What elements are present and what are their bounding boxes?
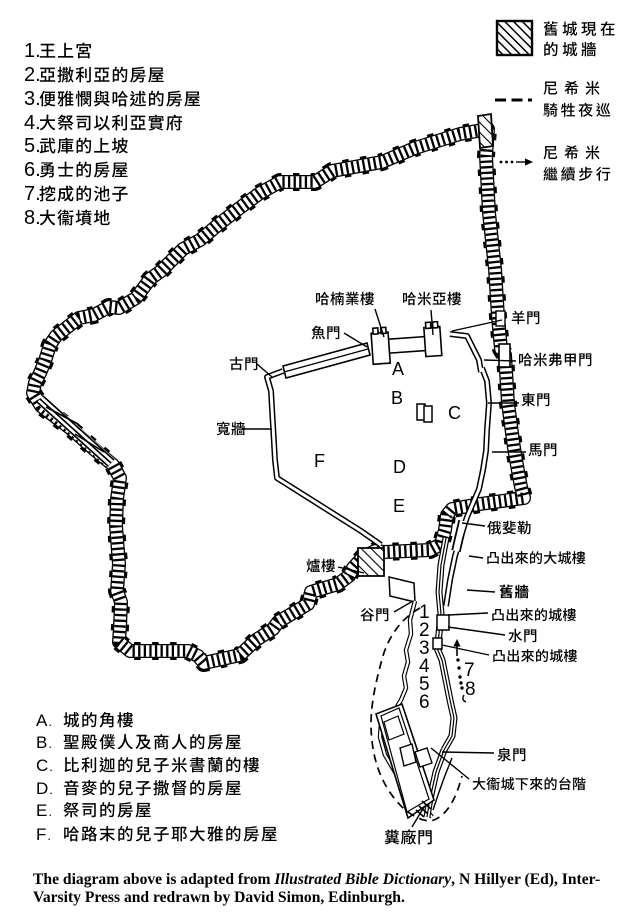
svg-text:1.: 1. [24,40,41,62]
svg-text:6: 6 [419,692,430,713]
svg-text:D.: D. [36,779,53,798]
svg-text:4.: 4. [24,112,41,134]
svg-text:A.: A. [36,711,52,730]
svg-text:B.: B. [36,733,52,752]
svg-text:F: F [314,451,325,471]
svg-text:7: 7 [464,660,475,681]
svg-text:E.: E. [36,801,52,820]
svg-text:6.: 6. [24,159,41,181]
svg-text:8.: 8. [24,207,41,229]
svg-text:8: 8 [465,679,476,700]
svg-text:5.: 5. [24,135,41,157]
svg-text:B: B [391,388,403,408]
svg-text:F.: F. [36,825,51,844]
svg-text:3.: 3. [24,88,41,110]
svg-text:The diagram above is adapted f: The diagram above is adapted from Illust… [33,871,600,888]
svg-text:E: E [393,496,405,516]
svg-text:D: D [393,457,406,477]
svg-text:Varsity Press and redrawn by D: Varsity Press and redrawn by David Simon… [33,889,405,906]
svg-text:7.: 7. [24,183,41,205]
svg-text:2.: 2. [24,64,41,86]
svg-text:A: A [392,359,404,379]
svg-text:C.: C. [36,756,53,775]
svg-text:C: C [448,403,461,423]
